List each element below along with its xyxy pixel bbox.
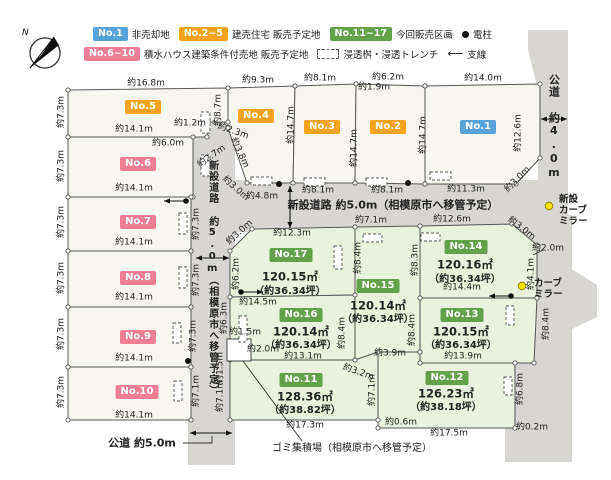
boundary-point (376, 350, 380, 354)
legend-badge: No.11~17 (330, 27, 393, 41)
boundary-point (226, 120, 230, 124)
lot-no1-shape (425, 84, 540, 184)
lot-no15-shape (355, 226, 420, 360)
trench-marker (334, 246, 342, 269)
trench-icon (317, 49, 339, 59)
trench-marker (363, 234, 382, 242)
lot-no10-shape (68, 367, 191, 420)
support-wire-anchor (183, 198, 189, 204)
legend-item: No.11~17今回販売区画 (330, 27, 454, 41)
trench-marker (506, 306, 514, 325)
lot-no13-shape (420, 298, 537, 363)
boundary-point (293, 84, 297, 88)
boundary-point (66, 195, 70, 199)
boundary-point (189, 305, 193, 309)
boundary-point (535, 296, 539, 300)
boundary-point (226, 86, 230, 90)
lot-no6-shape (68, 137, 193, 197)
boundary-point (376, 426, 380, 430)
boundary-point (205, 135, 209, 139)
support-wire-anchor (238, 289, 244, 295)
compass-n-label: N (22, 28, 29, 38)
legend-label: 浸透桝・浸透トレンチ (343, 47, 438, 61)
boundary-point (353, 293, 357, 297)
boundary-point (532, 361, 536, 365)
trench-marker (179, 267, 187, 288)
legend-item: No.2~5建売住宅 販売予定地 (179, 27, 321, 41)
site-plan: 新設カーブミラーカーブミラー約16.8m約7.3m約14.1m約1.2m約6.0… (0, 0, 611, 480)
trench-marker (430, 172, 451, 180)
utility-pole-icon (276, 181, 282, 187)
boundary-point (535, 243, 539, 247)
trench-marker (421, 233, 440, 241)
boundary-point (66, 418, 70, 422)
trench-marker (174, 381, 182, 401)
lot-no8-shape (68, 251, 191, 307)
compass-icon: N (20, 24, 68, 76)
boundary-point (228, 249, 232, 253)
boundary-point (418, 361, 422, 365)
legend-label: 非売却地 (132, 27, 170, 41)
boundary-point (353, 358, 357, 362)
lot-no3-shape (293, 84, 356, 183)
trench-marker (239, 316, 247, 342)
boundary-point (66, 305, 70, 309)
boundary-point (376, 418, 380, 422)
legend-badge: No.1 (93, 27, 128, 41)
legend-item: No.1非売却地 (93, 27, 170, 41)
legend-row-1: No.1非売却地No.2~5建売住宅 販売予定地No.11~17今回販売区画電柱 (93, 27, 492, 41)
boundary-point (418, 296, 422, 300)
site-plan-svg (0, 0, 611, 480)
boundary-point (423, 84, 427, 88)
support-wire-icon: ⟵ (447, 49, 463, 59)
public-road-right-bump (540, 268, 597, 330)
boundary-point (191, 135, 195, 139)
legend-label: 支線 (467, 47, 486, 61)
legend-item: 電柱 (462, 27, 492, 41)
trench-marker (504, 377, 512, 395)
boundary-point (513, 361, 517, 365)
boundary-point (353, 181, 357, 185)
trench-marker (173, 323, 181, 343)
legend-item: ⟵支線 (447, 47, 486, 61)
legend-label: 今回販売区画 (396, 27, 453, 41)
boundary-point (538, 156, 542, 160)
trench-marker (366, 178, 387, 186)
lot-no12-shape (378, 352, 515, 428)
utility-pole-icon (405, 180, 411, 186)
boundary-point (66, 365, 70, 369)
boundary-point (189, 365, 193, 369)
boundary-point (228, 418, 232, 422)
boundary-point (291, 181, 295, 185)
lot-no7-shape (68, 197, 191, 251)
boundary-point (245, 181, 249, 185)
boundary-point (418, 350, 422, 354)
lot-no2-shape (355, 84, 425, 184)
boundary-point (418, 224, 422, 228)
boundary-point (354, 82, 358, 86)
curve-mirror-icon (518, 282, 526, 290)
boundary-point (510, 222, 514, 226)
support-wire-anchor (508, 293, 514, 299)
legend-item: 浸透桝・浸透トレンチ (317, 47, 438, 61)
boundary-point (538, 82, 542, 86)
lot-no4-shape (228, 86, 295, 183)
legend-badge: No.2~5 (179, 27, 228, 41)
trench-marker (201, 112, 210, 133)
boundary-point (66, 135, 70, 139)
legend-row-2: No.6~10積水ハウス建築条件付売地 販売予定地浸透桝・浸透トレンチ⟵支線 (84, 47, 486, 61)
trench-marker (201, 155, 210, 176)
boundary-point (514, 182, 518, 186)
new-road-vertical (188, 120, 235, 465)
legend-badge: No.6~10 (84, 47, 140, 61)
trench-marker (304, 178, 325, 186)
utility-pole-icon (185, 358, 191, 364)
boundary-point (423, 182, 427, 186)
boundary-point (189, 195, 193, 199)
boundary-point (226, 126, 230, 130)
boundary-point (513, 426, 517, 430)
boundary-point (66, 88, 70, 92)
curve-mirror-icon (545, 202, 553, 210)
boundary-point (189, 249, 193, 253)
boundary-point (189, 418, 193, 422)
boundary-point (66, 249, 70, 253)
legend-item: No.6~10積水ハウス建築条件付売地 販売予定地 (84, 47, 308, 61)
boundary-point (228, 295, 232, 299)
legend-label: 積水ハウス建築条件付売地 販売予定地 (144, 47, 309, 61)
boundary-point (353, 225, 357, 229)
trench-marker (251, 177, 272, 185)
legend-label: 建売住宅 販売予定地 (232, 27, 321, 41)
utility-pole-icon (462, 31, 469, 38)
trench-marker (179, 213, 187, 234)
legend-label: 電柱 (473, 27, 492, 41)
boundary-point (250, 227, 254, 231)
